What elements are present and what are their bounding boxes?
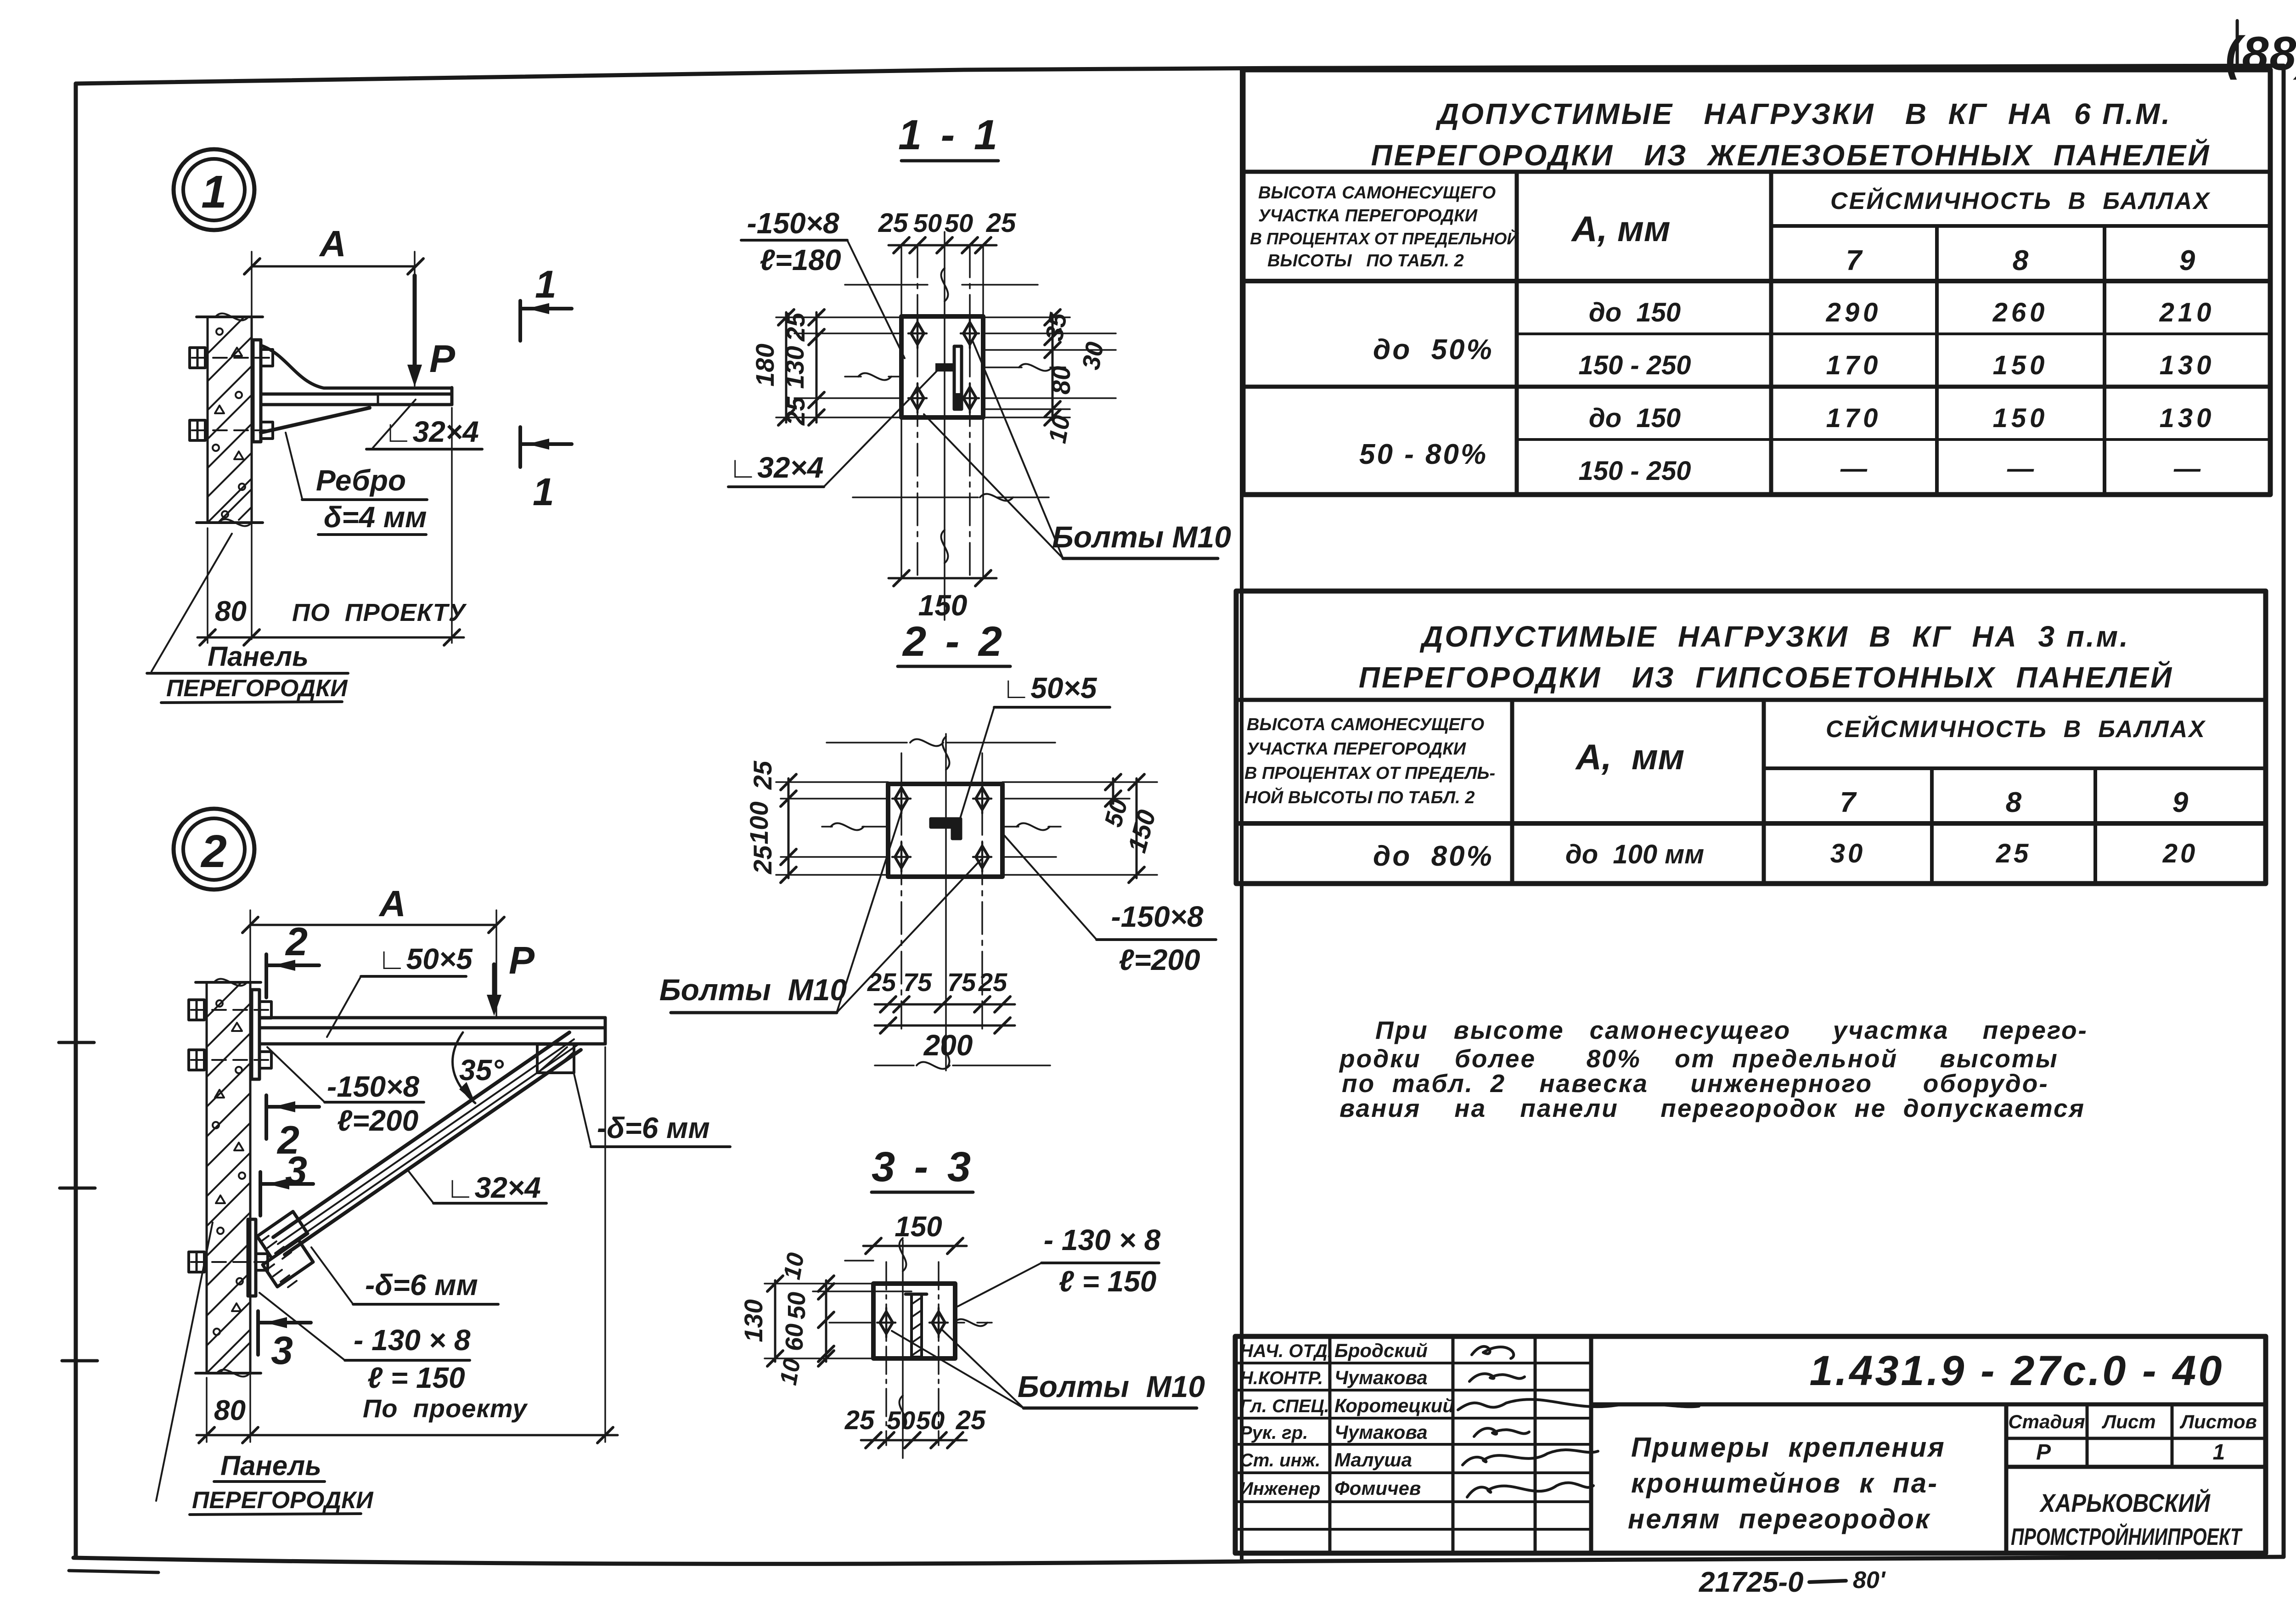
svg-text:25: 25: [1996, 839, 2032, 868]
svg-text:до 80%: до 80%: [1373, 840, 1494, 872]
svg-text:Болты М10: Болты М10: [1018, 1369, 1205, 1403]
svg-text:ДОПУСТИМЫЕ НАГРУЗКИ В КГ: ДОПУСТИМЫЕ НАГРУЗКИ В КГ НА 6 П.М.: [1435, 97, 2172, 130]
svg-text:кронштейнов к па-: кронштейнов к па-: [1631, 1468, 1938, 1499]
svg-text:25: 25: [781, 312, 810, 342]
svg-text:50: 50: [945, 208, 973, 237]
svg-text:180: 180: [750, 344, 779, 386]
svg-text:Чумакова: Чумакова: [1334, 1421, 1428, 1443]
svg-text:до 100 мм: до 100 мм: [1565, 839, 1704, 869]
svg-text:НАЧ. ОТД.: НАЧ. ОТД.: [1240, 1341, 1333, 1361]
svg-text:Малуша: Малуша: [1334, 1449, 1412, 1470]
svg-text:ℓ = 150: ℓ = 150: [1059, 1265, 1157, 1298]
svg-text:Гл. СПЕЦ.: Гл. СПЕЦ.: [1240, 1396, 1329, 1416]
svg-text:ℓ=200: ℓ=200: [337, 1104, 418, 1137]
svg-text:ℓ = 150: ℓ = 150: [367, 1361, 465, 1394]
svg-text:130: 130: [2160, 350, 2215, 380]
svg-text:ПЕРЕГОРОДКИ: ПЕРЕГОРОДКИ: [192, 1487, 374, 1514]
svg-text:—: —: [2007, 454, 2034, 484]
svg-text:Коротецкий: Коротецкий: [1334, 1395, 1454, 1416]
svg-text:Стадия: Стадия: [2008, 1411, 2085, 1432]
svg-text:до 150: до 150: [1589, 403, 1681, 433]
svg-text:∟50×5: ∟50×5: [1002, 671, 1097, 704]
svg-text:Листов: Листов: [2179, 1411, 2257, 1432]
svg-text:При высоте самонесущего: При высоте самонесущего участка перего-: [1375, 1016, 2088, 1044]
svg-text:25: 25: [748, 761, 777, 790]
svg-text:9: 9: [2179, 245, 2195, 276]
svg-text:25: 25: [878, 208, 908, 238]
svg-text:∟50×5: ∟50×5: [377, 942, 473, 975]
svg-text:-150×8: -150×8: [747, 207, 839, 240]
svg-text:В ПРОЦЕНТАХ ОТ ПРЕДЕЛЬ-: В ПРОЦЕНТАХ ОТ ПРЕДЕЛЬ-: [1244, 764, 1495, 783]
svg-text:80: 80: [1047, 366, 1075, 394]
svg-text:Ребро: Ребро: [316, 464, 406, 497]
svg-text:25: 25: [781, 396, 810, 426]
svg-text:50 - 80%: 50 - 80%: [1359, 439, 1488, 470]
svg-text:1 - 1: 1 - 1: [898, 112, 1001, 158]
svg-text:150: 150: [918, 589, 968, 622]
svg-text:А, мм: А, мм: [1570, 208, 1670, 249]
svg-text:-δ=6 мм: -δ=6 мм: [597, 1111, 710, 1144]
svg-text:2: 2: [200, 826, 227, 877]
svg-text:150: 150: [1993, 403, 2048, 433]
svg-text:-150×8: -150×8: [1111, 900, 1203, 933]
svg-text:Р: Р: [429, 337, 456, 380]
svg-text:-150×8: -150×8: [327, 1070, 419, 1103]
svg-text:1: 1: [535, 263, 557, 306]
svg-text:21725-0: 21725-0: [1699, 1566, 1804, 1598]
svg-text:ВЫСОТЫ ПО ТАБЛ. 2: ВЫСОТЫ ПО ТАБЛ. 2: [1267, 251, 1464, 270]
svg-text:50: 50: [887, 1406, 915, 1435]
svg-text:10: 10: [1044, 413, 1076, 445]
svg-text:ℓ=180: ℓ=180: [760, 243, 841, 276]
svg-text:150 - 250: 150 - 250: [1578, 456, 1691, 486]
svg-text:по табл. 2 навеска ин: по табл. 2 навеска инженерного оборудо-: [1342, 1069, 2049, 1098]
svg-text:290: 290: [1826, 298, 1882, 327]
svg-text:8: 8: [2013, 245, 2029, 276]
svg-text:75: 75: [903, 968, 932, 997]
svg-text:СЕЙСМИЧНОСТЬ В БАЛЛАХ: СЕЙСМИЧНОСТЬ В БАЛЛАХ: [1826, 715, 2206, 743]
svg-text:вания на панели пере: вания на панели перегородок не допускает…: [1339, 1094, 2085, 1122]
svg-text:7: 7: [1840, 787, 1857, 818]
svg-text:1: 1: [533, 470, 554, 513]
svg-text:1: 1: [201, 166, 227, 218]
svg-text:3: 3: [271, 1329, 293, 1373]
svg-text:150: 150: [895, 1211, 942, 1243]
svg-text:нелям перегородок: нелям перегородок: [1628, 1504, 1930, 1534]
svg-text:до 150: до 150: [1589, 298, 1681, 327]
svg-text:25: 25: [844, 1405, 875, 1435]
svg-text:1: 1: [2213, 1440, 2225, 1465]
svg-text:ДОПУСТИМЫЕ НАГРУЗКИ В КГ Н: ДОПУСТИМЫЕ НАГРУЗКИ В КГ НА 3 п.м.: [1419, 620, 2130, 653]
svg-text:—: —: [2173, 454, 2201, 484]
svg-text:150 - 250: 150 - 250: [1578, 350, 1691, 380]
svg-text:-δ=6 мм: -δ=6 мм: [365, 1268, 478, 1301]
svg-text:ВЫСОТА САМОНЕСУЩЕГО: ВЫСОТА САМОНЕСУЩЕГО: [1258, 183, 1496, 203]
svg-text:ПЕРЕГОРОДКИ: ПЕРЕГОРОДКИ: [166, 675, 348, 702]
svg-text:ВЫСОТА САМОНЕСУЩЕГО: ВЫСОТА САМОНЕСУЩЕГО: [1247, 715, 1484, 734]
svg-text:В ПРОЦЕНТАХ ОТ ПРЕДЕЛЬНОЙ: В ПРОЦЕНТАХ ОТ ПРЕДЕЛЬНОЙ: [1250, 229, 1519, 248]
svg-text:50: 50: [916, 1406, 945, 1435]
svg-text:130: 130: [739, 1299, 768, 1342]
svg-text:35: 35: [1041, 310, 1073, 343]
svg-text:ПРОМСТРОЙНИИПРОЕКТ: ПРОМСТРОЙНИИПРОЕКТ: [2011, 1523, 2243, 1550]
svg-text:Р: Р: [509, 939, 535, 982]
svg-text:100: 100: [744, 801, 773, 844]
svg-text:3: 3: [285, 1149, 307, 1193]
svg-text:Примеры крепления: Примеры крепления: [1631, 1432, 1946, 1463]
svg-text:- 130 × 8: - 130 × 8: [354, 1324, 471, 1357]
svg-text:А, мм: А, мм: [1575, 737, 1685, 777]
svg-text:Ст. инж.: Ст. инж.: [1240, 1450, 1320, 1470]
svg-text:170: 170: [1826, 403, 1882, 433]
svg-text:ℓ=200: ℓ=200: [1119, 943, 1200, 976]
svg-text:80': 80': [1853, 1567, 1886, 1594]
svg-text:Н.КОНТР.: Н.КОНТР.: [1240, 1368, 1323, 1388]
svg-text:50: 50: [783, 1292, 810, 1319]
svg-text:родки более 80% от: родки более 80% от предельной высоты: [1339, 1044, 2059, 1073]
svg-text:до 50%: до 50%: [1373, 334, 1494, 366]
svg-text:ХАРЬКОВСКИЙ: ХАРЬКОВСКИЙ: [2039, 1488, 2211, 1517]
svg-text:25: 25: [748, 845, 777, 874]
svg-text:130: 130: [780, 346, 809, 389]
svg-text:Бродский: Бродский: [1334, 1340, 1428, 1361]
svg-text:Инженер: Инженер: [1240, 1479, 1320, 1499]
svg-text:1.431.9 - 27с.0 - 40: 1.431.9 - 27с.0 - 40: [1809, 1347, 2224, 1394]
svg-text:НОЙ ВЫСОТЫ ПО ТАБЛ. 2: НОЙ ВЫСОТЫ ПО ТАБЛ. 2: [1244, 787, 1474, 807]
svg-text:2 - 2: 2 - 2: [902, 618, 1006, 665]
svg-text:∟32×4: ∟32×4: [729, 451, 824, 484]
svg-text:ПО ПРОЕКТУ: ПО ПРОЕКТУ: [292, 599, 467, 626]
svg-text:Панель: Панель: [220, 1450, 321, 1481]
svg-text:50: 50: [913, 208, 942, 237]
svg-text:9: 9: [2172, 787, 2189, 818]
svg-text:25: 25: [867, 968, 896, 997]
svg-text:25: 25: [978, 968, 1007, 997]
svg-text:Болты М10: Болты М10: [659, 973, 847, 1007]
svg-text:25: 25: [986, 208, 1016, 238]
svg-text:Фомичев: Фомичев: [1334, 1477, 1421, 1499]
svg-text:30: 30: [1830, 839, 1866, 868]
svg-text:130: 130: [2160, 403, 2215, 433]
svg-text:30: 30: [1077, 340, 1109, 372]
svg-text:∟32×4: ∟32×4: [446, 1171, 541, 1204]
svg-text:260: 260: [1992, 298, 2048, 327]
svg-text:—: —: [1840, 454, 1868, 484]
svg-text:δ=4 мм: δ=4 мм: [324, 501, 427, 534]
svg-text:По проекту: По проекту: [363, 1394, 528, 1423]
svg-text:8: 8: [2006, 787, 2022, 818]
svg-text:Лист: Лист: [2101, 1411, 2155, 1432]
svg-text:25: 25: [956, 1405, 986, 1435]
svg-text:200: 200: [923, 1029, 973, 1062]
svg-text:150: 150: [1993, 350, 2048, 380]
svg-text:10: 10: [775, 1356, 806, 1387]
svg-text:20: 20: [2162, 839, 2198, 868]
svg-text:УЧАСТКА ПЕРЕГОРОДКИ: УЧАСТКА ПЕРЕГОРОДКИ: [1258, 206, 1478, 225]
svg-text:Панель: Панель: [208, 641, 309, 672]
svg-text:Рук. гр.: Рук. гр.: [1240, 1423, 1308, 1443]
svg-text:УЧАСТКА ПЕРЕГОРОДКИ: УЧАСТКА ПЕРЕГОРОДКИ: [1247, 739, 1466, 759]
svg-text:35°: 35°: [459, 1054, 504, 1087]
svg-text:Болты М10: Болты М10: [1052, 520, 1231, 554]
svg-text:ПЕРЕГОРОДКИ ИЗ ЖЕЛЕЗОБЕТОНН: ПЕРЕГОРОДКИ ИЗ ЖЕЛЕЗОБЕТОННЫХ ПАНЕЛЕЙ: [1371, 138, 2211, 172]
svg-text:Чумакова: Чумакова: [1334, 1367, 1428, 1388]
svg-text:210: 210: [2159, 298, 2215, 327]
svg-text:7: 7: [1846, 245, 1863, 276]
svg-text:10: 10: [779, 1251, 810, 1281]
svg-text:- 130 × 8: - 130 × 8: [1044, 1223, 1161, 1256]
svg-text:3 - 3: 3 - 3: [872, 1144, 974, 1190]
svg-text:А: А: [319, 223, 346, 264]
svg-text:А: А: [378, 883, 406, 924]
svg-text:СЕЙСМИЧНОСТЬ В БАЛЛАХ: СЕЙСМИЧНОСТЬ В БАЛЛАХ: [1830, 187, 2211, 214]
svg-text:2: 2: [285, 920, 308, 964]
svg-text:Р: Р: [2036, 1440, 2051, 1465]
svg-text:80: 80: [215, 596, 247, 627]
svg-text:ПЕРЕГОРОДКИ ИЗ ГИПСОБЕТОННЫ: ПЕРЕГОРОДКИ ИЗ ГИПСОБЕТОННЫХ ПАНЕЛЕЙ: [1359, 660, 2173, 694]
svg-text:170: 170: [1826, 350, 1882, 380]
svg-text:80: 80: [214, 1395, 246, 1426]
svg-text:75: 75: [947, 968, 976, 997]
svg-text:60: 60: [781, 1324, 808, 1351]
